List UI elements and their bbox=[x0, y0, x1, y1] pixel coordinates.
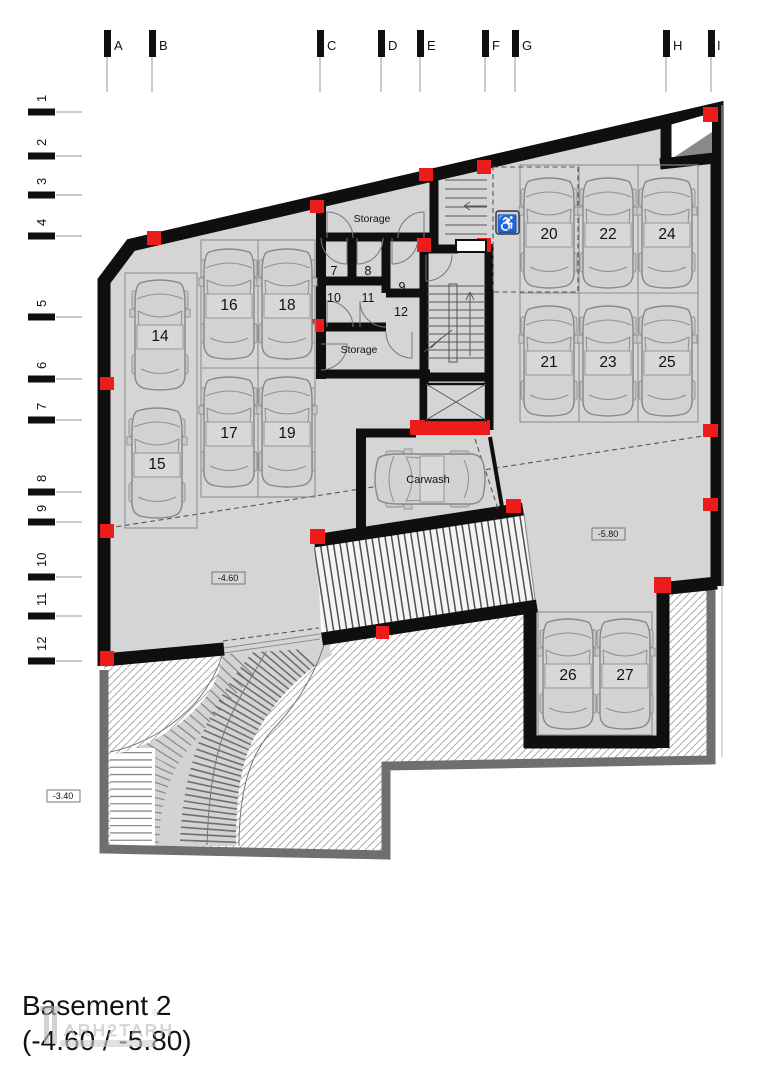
spot-label: 23 bbox=[599, 354, 616, 371]
spot-label: 26 bbox=[559, 667, 576, 684]
spot-label: 22 bbox=[599, 226, 616, 243]
spot-label: 24 bbox=[658, 226, 676, 243]
room-number: 10 bbox=[327, 291, 341, 305]
grid-col-label: I bbox=[717, 38, 721, 53]
grid-row-label: 4 bbox=[34, 219, 49, 226]
watermark-subtext-blur bbox=[60, 1040, 156, 1047]
floor-plan-page: 14 15 16 18 17 19 20 22 24 21 23 25 26 2… bbox=[0, 0, 764, 1080]
grid-col-label: B bbox=[159, 38, 168, 53]
spot-label: 21 bbox=[540, 354, 557, 371]
grid-col-label: H bbox=[673, 38, 682, 53]
grid-row-label: 3 bbox=[34, 178, 49, 185]
room-number: 8 bbox=[365, 264, 372, 278]
grid-columns: A B C D E F G H I bbox=[104, 30, 721, 92]
grid-row-label: 11 bbox=[34, 593, 49, 607]
spot-label: 25 bbox=[658, 354, 675, 371]
wheelchair-icon: ♿ bbox=[497, 214, 518, 234]
floor-plan-canvas: 14 15 16 18 17 19 20 22 24 21 23 25 26 2… bbox=[0, 0, 764, 1080]
spot-label: 17 bbox=[220, 425, 237, 442]
grid-row-label: 8 bbox=[34, 475, 49, 482]
spot-label: 18 bbox=[278, 297, 295, 314]
grid-col-label: C bbox=[327, 38, 336, 53]
elevator-pit-wall bbox=[410, 420, 490, 435]
spot-label: 27 bbox=[616, 667, 633, 684]
grid-row-label: 10 bbox=[34, 553, 49, 567]
grid-row-label: 2 bbox=[34, 139, 49, 146]
grid-row-label: 12 bbox=[34, 637, 49, 651]
grid-col-label: A bbox=[114, 38, 123, 53]
spot-label: 14 bbox=[151, 328, 169, 345]
grid-col-label: E bbox=[427, 38, 436, 53]
accessible-parking-sign: ♿ bbox=[496, 211, 519, 234]
storage-label: Storage bbox=[341, 344, 378, 356]
carwash-label: Carwash bbox=[406, 474, 449, 486]
watermark-text: ARH2TARH bbox=[64, 1021, 174, 1040]
grid-row-label: 1 bbox=[34, 95, 49, 102]
watermark-registered-mark: ® bbox=[152, 1008, 160, 1019]
storage-label: Storage bbox=[354, 213, 391, 225]
room-number: 9 bbox=[399, 280, 406, 294]
grid-row-label: 9 bbox=[34, 505, 49, 512]
spot-label: 20 bbox=[540, 226, 558, 243]
room-number: 12 bbox=[394, 305, 408, 319]
elevator-shaft bbox=[426, 384, 486, 420]
grid-row-label: 6 bbox=[34, 362, 49, 369]
level-label: -5.80 bbox=[598, 529, 619, 539]
room-number: 11 bbox=[362, 291, 375, 305]
spot-label: 15 bbox=[148, 456, 165, 473]
room-number: 7 bbox=[331, 264, 338, 278]
grid-row-label: 5 bbox=[34, 300, 49, 307]
grid-col-label: D bbox=[388, 38, 397, 53]
grid-col-label: G bbox=[522, 38, 532, 53]
spot-label: 16 bbox=[220, 297, 237, 314]
stair-landing-notch bbox=[456, 240, 486, 252]
spot-label: 19 bbox=[278, 425, 295, 442]
grid-rows: 1 2 3 4 5 6 7 8 9 10 11 12 bbox=[28, 95, 82, 665]
grid-row-label: 7 bbox=[34, 403, 49, 410]
level-label: -4.60 bbox=[218, 573, 239, 583]
level-label: -3.40 bbox=[53, 791, 74, 801]
grid-col-label: F bbox=[492, 38, 500, 53]
